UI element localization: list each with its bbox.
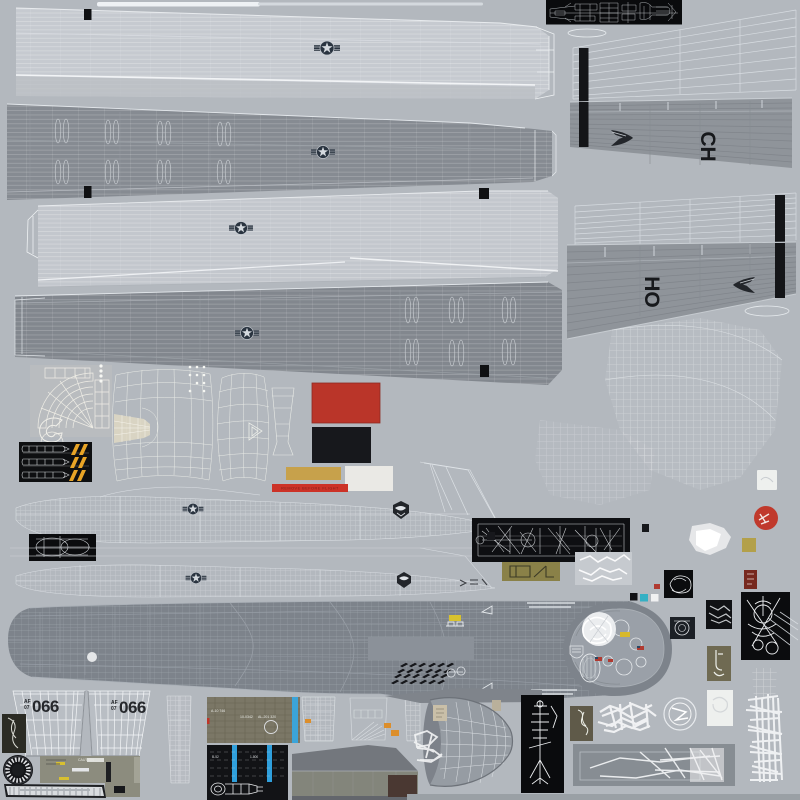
svg-text:B-52: B-52 [212, 755, 219, 759]
svg-text:066: 066 [119, 698, 146, 717]
svg-text:07: 07 [111, 706, 117, 712]
svg-text:HO: HO [640, 276, 663, 308]
svg-text:10-0342: 10-0342 [240, 715, 253, 719]
svg-text:07: 07 [24, 705, 30, 711]
svg-text:A-10 746: A-10 746 [211, 709, 225, 713]
svg-text:AL-201 320: AL-201 320 [258, 715, 276, 719]
svg-text:CH: CH [696, 131, 719, 161]
svg-text:CAUTION: CAUTION [78, 758, 94, 762]
svg-text:REMOVE BEFORE FLIGHT: REMOVE BEFORE FLIGHT [281, 487, 339, 491]
svg-text:066: 066 [32, 697, 59, 716]
svg-text:1-800: 1-800 [250, 755, 258, 759]
